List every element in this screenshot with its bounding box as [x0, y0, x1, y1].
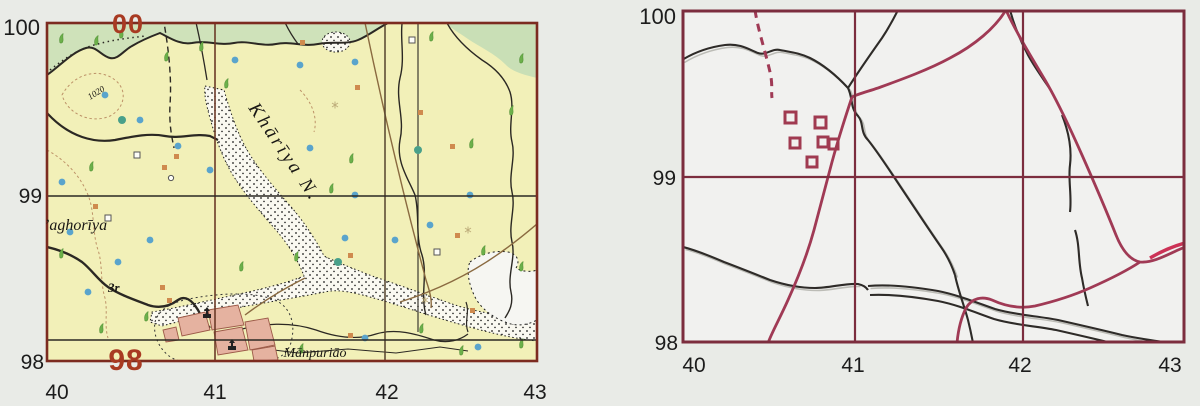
hut-icon [160, 285, 165, 290]
hut-icon [348, 253, 353, 258]
easting-label: 40 [682, 354, 705, 377]
hut-icon [167, 298, 172, 303]
building-block [208, 305, 244, 330]
hut-icon [455, 233, 460, 238]
well-icon [352, 59, 359, 66]
maps-figure: 1020 [0, 0, 1200, 406]
village-name-west: ’aghorīya [44, 217, 107, 234]
hut-icon [162, 165, 167, 170]
well-icon [342, 235, 349, 242]
easting-label: 41 [203, 381, 226, 404]
hut-icon [355, 85, 360, 90]
hut-icon [93, 204, 98, 209]
well-icon [427, 222, 434, 229]
hut-icon [450, 144, 455, 149]
right-map: 100 99 98 40 41 42 43 [639, 4, 1187, 377]
well-icon [85, 289, 92, 296]
easting-label: 42 [1008, 354, 1031, 377]
well-icon [467, 192, 474, 199]
northing-label: 99 [653, 167, 676, 190]
northing-label: 100 [3, 15, 40, 40]
hut-icon [348, 333, 353, 338]
well-icon [392, 237, 399, 244]
hut-icon [470, 308, 475, 313]
well-icon [352, 192, 359, 199]
well-icon [297, 62, 304, 69]
grid-digit-bottom: 98 [108, 344, 143, 377]
scanned-page: 1020 [0, 0, 1200, 406]
northing-label: 99 [19, 185, 42, 208]
hut-icon [174, 154, 179, 159]
northing-label: 100 [639, 4, 676, 29]
well-icon [102, 92, 109, 99]
hut-open-icon [168, 175, 173, 180]
easting-label: 43 [523, 381, 546, 404]
tussock-icon [414, 146, 422, 154]
well-icon [207, 167, 214, 174]
easting-label: 42 [375, 381, 398, 404]
hut-open-icon [409, 37, 415, 43]
grid-digit-top: 00 [112, 9, 144, 39]
northing-label: 98 [655, 332, 678, 355]
hut-open-icon [134, 152, 140, 158]
northing-label: 98 [21, 351, 44, 374]
well-icon [115, 259, 122, 266]
well-icon [307, 145, 314, 152]
well-icon [59, 179, 66, 186]
well-icon [475, 344, 482, 351]
tussock-icon [334, 258, 342, 266]
well-icon [175, 143, 182, 150]
village-name-south: Mānpuriāo [283, 346, 347, 361]
hut-open-icon [434, 249, 440, 255]
easting-label: 40 [45, 381, 68, 404]
well-icon [147, 237, 154, 244]
left-map: 1020 [3, 9, 546, 404]
easting-label: 41 [841, 354, 864, 377]
easting-label: 43 [1158, 354, 1181, 377]
hut-icon [418, 110, 423, 115]
hut-icon [300, 40, 305, 45]
stream-note-label: 3r [107, 280, 121, 295]
well-icon [232, 57, 239, 64]
tussock-icon [118, 116, 126, 124]
well-icon [137, 117, 144, 124]
